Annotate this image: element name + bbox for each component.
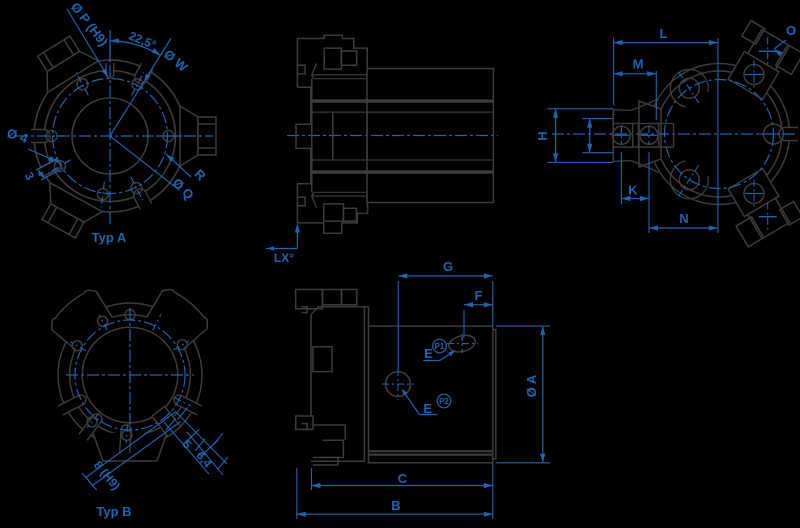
svg-text:F: F [475, 288, 483, 303]
svg-text:K: K [628, 183, 638, 198]
svg-text:L: L [660, 26, 668, 41]
svg-text:E: E [424, 346, 433, 361]
svg-text:Typ A: Typ A [92, 230, 127, 245]
svg-text:B: B [391, 498, 400, 513]
svg-text:P2: P2 [439, 397, 449, 406]
svg-text:Ø A: Ø A [524, 374, 539, 397]
svg-text:M: M [633, 57, 644, 72]
svg-text:Typ B: Typ B [96, 504, 131, 519]
svg-text:E: E [423, 401, 432, 416]
svg-text:N: N [679, 211, 688, 226]
svg-text:H: H [535, 131, 550, 140]
svg-text:P1: P1 [435, 342, 445, 351]
svg-text:O: O [786, 23, 796, 38]
svg-text:C: C [398, 471, 408, 486]
svg-text:LX°: LX° [274, 251, 294, 265]
svg-text:G: G [443, 259, 453, 274]
